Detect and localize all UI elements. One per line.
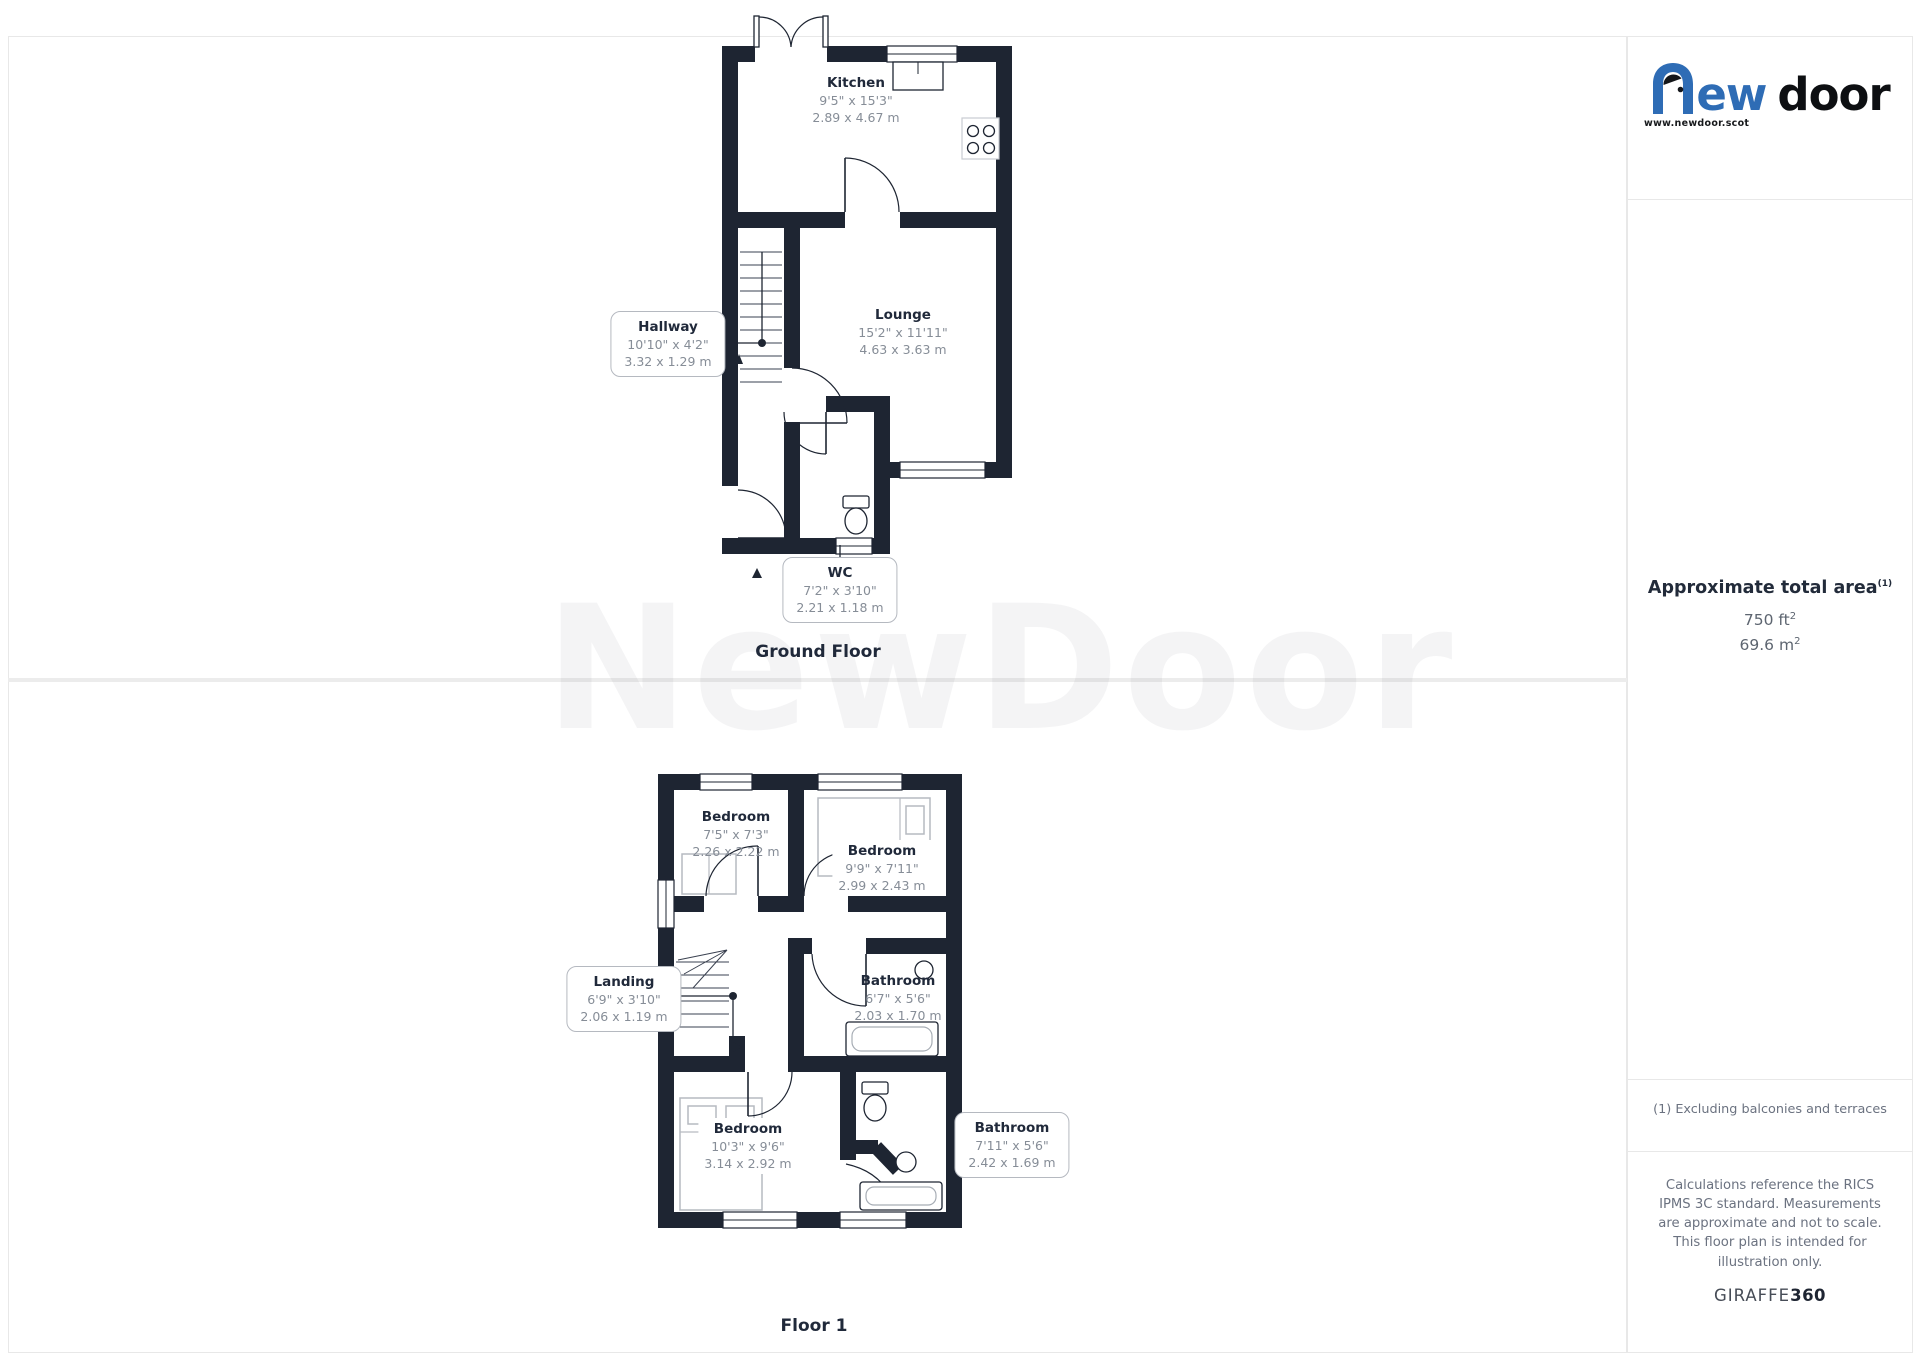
sink-icon [893, 62, 943, 90]
footnote-marker: (1) [1878, 579, 1893, 589]
bathtub-icon [860, 1182, 942, 1210]
lounge-label: Lounge 15'2" x 11'11" 4.63 x 3.63 m [858, 306, 947, 358]
bedroom2-label: Bedroom 9'9" x 7'11" 2.99 x 2.43 m [832, 840, 931, 896]
ground-floor-title: Ground Floor [755, 642, 881, 662]
hob-icon [962, 118, 999, 159]
bedroom1-label: Bedroom 7'5" x 7'3" 2.26 x 2.22 m [692, 808, 779, 860]
rics-disclaimer: Calculations reference the RICS IPMS 3C … [1650, 1176, 1890, 1272]
double-door-icon [754, 16, 828, 47]
approximate-area-block: Approximate total area(1) 750 ft2 69.6 m… [1627, 578, 1913, 654]
sink-icon [896, 1152, 916, 1172]
newdoor-logo-door-icon [1650, 60, 1696, 114]
logo-word-new: ew [1696, 77, 1766, 114]
landing-callout: Landing 6'9" x 3'10" 2.06 x 1.19 m [566, 966, 681, 1032]
area-metric: 69.6 m2 [1627, 636, 1913, 654]
bathroom2-callout: Bathroom 7'11" x 5'6" 2.42 x 1.69 m [954, 1112, 1069, 1178]
balconies-footnote: (1) Excluding balconies and terraces [1627, 1102, 1913, 1117]
bedroom3-label: Bedroom 10'3" x 9'6" 3.14 x 2.92 m [698, 1118, 797, 1174]
kitchen-label: Kitchen 9'5" x 15'3" 2.89 x 4.67 m [812, 74, 899, 126]
floorplan-page: NewDoor [0, 0, 1920, 1358]
newdoor-logo: ew door www.newdoor.scot [1630, 60, 1910, 129]
bathroom1-label: Bathroom 6'7" x 5'6" 2.03 x 1.70 m [854, 972, 941, 1024]
wc-callout: WC 7'2" x 3'10" 2.21 x 1.18 m [782, 557, 897, 623]
toilet-icon [843, 496, 869, 534]
wardrobe-icon [682, 854, 736, 894]
area-imperial: 750 ft2 [1627, 611, 1913, 629]
toilet-icon [862, 1082, 888, 1121]
giraffe360-brand: GIRAFFE360 [1627, 1286, 1913, 1305]
entrance-arrow [752, 568, 762, 578]
bathtub-icon [846, 1022, 938, 1056]
floor1-title: Floor 1 [781, 1316, 848, 1336]
hallway-callout: Hallway 10'10" x 4'2" 3.32 x 1.29 m [610, 311, 725, 377]
stairs-ground-floor [740, 252, 782, 382]
logo-word-door: door [1777, 77, 1889, 114]
area-title: Approximate total area(1) [1627, 578, 1913, 598]
